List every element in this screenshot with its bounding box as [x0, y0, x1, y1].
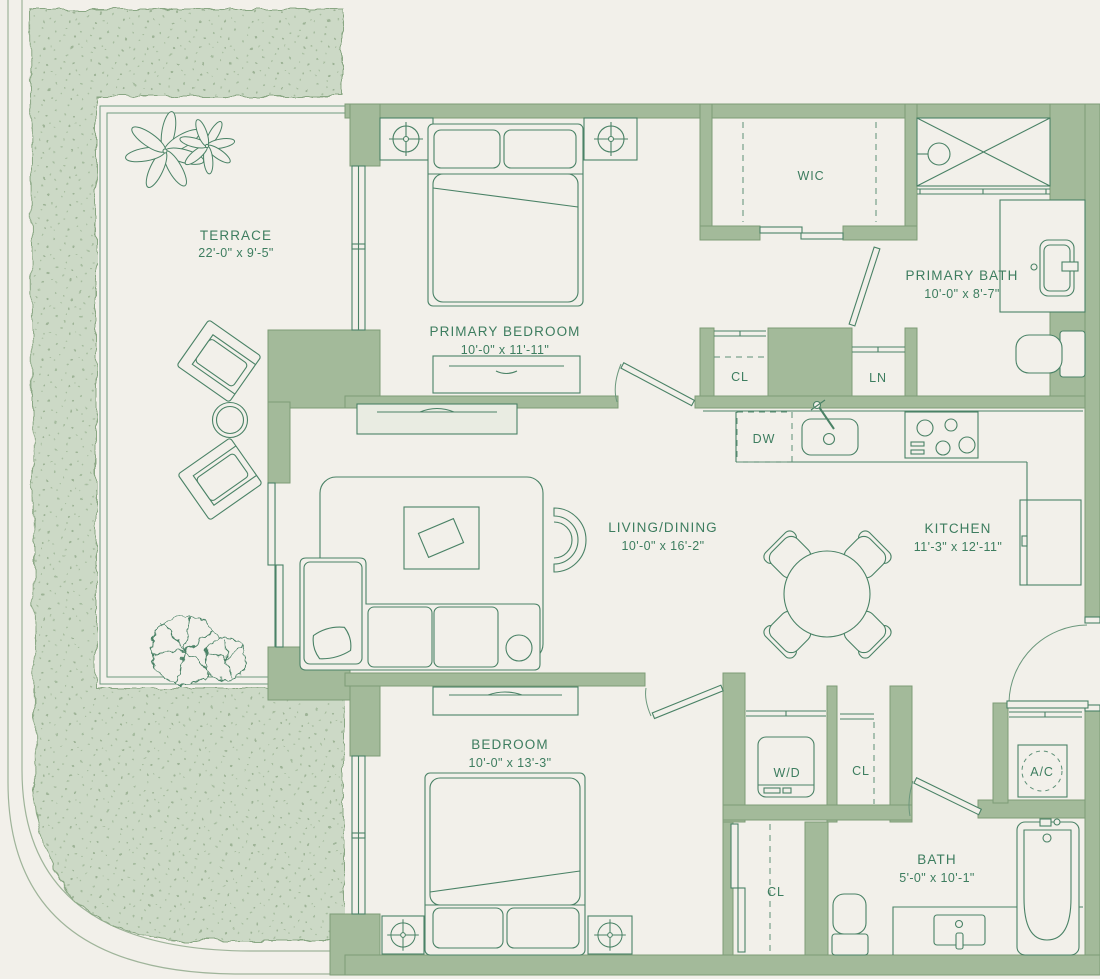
- entry-hall-closet-label: CL: [767, 885, 785, 899]
- primary-bath-name: PRIMARY BATH: [906, 268, 1019, 283]
- bedroom-name: BEDROOM: [471, 737, 548, 752]
- washer-dryer-label: W/D: [774, 766, 801, 780]
- tv-console-icon: [357, 404, 517, 434]
- primary-bedroom-name: PRIMARY BEDROOM: [429, 324, 580, 339]
- toilet-icon: [832, 894, 868, 955]
- primary-bedroom-window-icon: [352, 166, 365, 330]
- toilet-icon: [1016, 331, 1085, 377]
- bed-icon: [425, 773, 585, 955]
- bed-icon: [428, 124, 583, 306]
- laundry-closet-label: CL: [852, 764, 870, 778]
- vanity-sink-icon: [1000, 200, 1085, 312]
- kitchen-name: KITCHEN: [925, 521, 992, 536]
- primary-bath-dims: 10'-0" x 8'-7": [924, 287, 1000, 301]
- living-dining-dims: 10'-0" x 16'-2": [622, 539, 705, 553]
- floor-plan-page: TERRACE 22'-0" x 9'-5": [0, 0, 1100, 979]
- dresser-icon: [433, 356, 580, 393]
- bathtub-icon: [1017, 819, 1079, 955]
- ac-label: A/C: [1030, 765, 1054, 779]
- living-dining-name: LIVING/DINING: [608, 520, 718, 535]
- bedroom-dims: 10'-0" x 13'-3": [469, 756, 552, 770]
- terrace-side-table-icon: [213, 403, 248, 438]
- dresser-icon: [433, 687, 578, 715]
- bedroom-window-icon: [352, 756, 365, 914]
- dishwasher-label: DW: [753, 432, 776, 446]
- kitchen-dims: 11'-3" x 12'-11": [914, 540, 1002, 554]
- wic-label: WIC: [798, 169, 825, 183]
- shower-icon: [917, 118, 1050, 194]
- refrigerator-icon: [1020, 500, 1081, 585]
- bath-dims: 5'-0" x 10'-1": [899, 871, 975, 885]
- hall-closet-label: CL: [731, 370, 749, 384]
- terrace-name: TERRACE: [200, 228, 272, 243]
- linen-closet-label: LN: [869, 371, 887, 385]
- coffee-table-icon: [404, 507, 479, 569]
- side-table-icon: [506, 635, 532, 661]
- terrace-dims: 22'-0" x 9'-5": [198, 246, 274, 260]
- floor-plan: TERRACE 22'-0" x 9'-5": [0, 0, 1100, 979]
- primary-bedroom-dims: 10'-0" x 11'-11": [461, 343, 549, 357]
- bath-name: BATH: [917, 852, 956, 867]
